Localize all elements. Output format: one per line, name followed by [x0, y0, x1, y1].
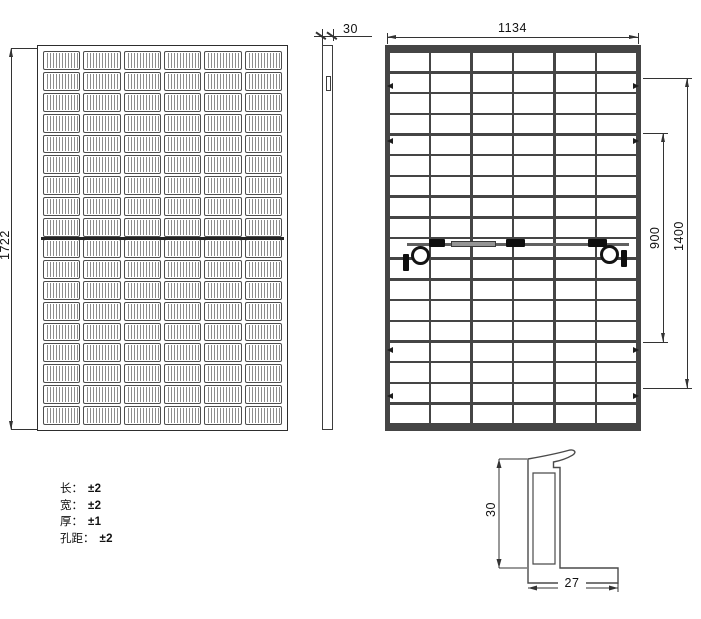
- mount-hole-icon: [633, 83, 639, 89]
- panel-cell: [390, 74, 429, 92]
- front-view-panel: [37, 45, 288, 431]
- mount-hole-icon: [387, 138, 393, 144]
- panel-cell: [431, 322, 470, 340]
- panel-cell: [390, 322, 429, 340]
- arrow-icon: [528, 586, 537, 591]
- panel-cell: [83, 72, 120, 91]
- panel-cell: [164, 51, 201, 70]
- back-view-panel: [385, 45, 641, 431]
- side-view-mount-slot: [326, 76, 331, 91]
- panel-cell: [43, 72, 80, 91]
- dim-ext-1134-right: [638, 33, 639, 44]
- panel-cell: [164, 197, 201, 216]
- panel-cell: [556, 301, 595, 319]
- panel-cell: [43, 155, 80, 174]
- panel-cell: [514, 281, 553, 299]
- panel-cell: [390, 384, 429, 402]
- panel-cell: [473, 115, 512, 133]
- panel-cell: [514, 74, 553, 92]
- panel-cell: [556, 322, 595, 340]
- panel-cell: [514, 301, 553, 319]
- panel-cell: [390, 177, 429, 195]
- tolerance-value: ±1: [88, 516, 101, 528]
- panel-cell: [204, 155, 241, 174]
- panel-cell: [431, 260, 470, 278]
- panel-cell: [245, 385, 282, 404]
- mount-hole-icon: [633, 347, 639, 353]
- arrow-icon: [609, 586, 618, 591]
- dim-label-1722: 1722: [0, 206, 16, 284]
- panel-cell: [245, 302, 282, 321]
- dim-ext-900-bottom: [643, 342, 668, 343]
- panel-cell: [556, 363, 595, 381]
- panel-cell: [556, 94, 595, 112]
- panel-cell: [390, 281, 429, 299]
- tolerance-row: 厚：±1: [60, 514, 113, 531]
- dim-ext-30-right: [333, 29, 334, 41]
- panel-cell: [204, 343, 241, 362]
- panel-cell: [245, 323, 282, 342]
- cable-coil-left: [411, 246, 430, 265]
- panel-cell: [83, 93, 120, 112]
- panel-cell: [431, 136, 470, 154]
- panel-cell: [597, 74, 636, 92]
- arrow-icon: [497, 559, 502, 568]
- tolerance-value: ±2: [100, 533, 113, 545]
- panel-cell: [431, 384, 470, 402]
- panel-cell: [164, 218, 201, 237]
- panel-cell: [43, 239, 80, 258]
- panel-cell: [597, 343, 636, 361]
- panel-cell: [124, 385, 161, 404]
- panel-cell: [43, 260, 80, 279]
- panel-cell: [43, 406, 80, 425]
- panel-cell: [43, 385, 80, 404]
- panel-cell: [43, 302, 80, 321]
- panel-cell: [556, 53, 595, 71]
- panel-cell: [83, 364, 120, 383]
- panel-cell: [43, 281, 80, 300]
- tolerance-label: 厚：: [60, 516, 83, 528]
- mount-hole-icon: [633, 393, 639, 399]
- panel-cell: [597, 301, 636, 319]
- panel-cell: [83, 114, 120, 133]
- panel-cell: [514, 156, 553, 174]
- panel-cell: [431, 53, 470, 71]
- tolerance-label: 孔距：: [60, 533, 95, 545]
- tolerance-label: 长：: [60, 483, 83, 495]
- panel-cell: [473, 384, 512, 402]
- arrow-icon: [661, 333, 665, 342]
- panel-cell: [431, 343, 470, 361]
- panel-cell: [83, 239, 120, 258]
- panel-cell: [83, 281, 120, 300]
- panel-cell: [514, 177, 553, 195]
- cable-connector: [429, 239, 445, 247]
- panel-cell: [245, 155, 282, 174]
- tolerance-label: 宽：: [60, 500, 83, 512]
- panel-cell: [514, 363, 553, 381]
- panel-cell: [164, 343, 201, 362]
- panel-cell: [124, 176, 161, 195]
- panel-cell: [556, 74, 595, 92]
- dim-line-1400: [687, 78, 688, 388]
- dim-label-30-side: 30: [343, 22, 358, 36]
- panel-cell: [556, 156, 595, 174]
- panel-cell: [204, 176, 241, 195]
- profile-cavity: [533, 473, 555, 564]
- panel-cell: [124, 323, 161, 342]
- panel-cell: [514, 115, 553, 133]
- panel-cell: [124, 260, 161, 279]
- panel-cell: [43, 323, 80, 342]
- panel-cell: [597, 384, 636, 402]
- panel-cell: [473, 74, 512, 92]
- panel-cell: [431, 281, 470, 299]
- panel-cell: [164, 72, 201, 91]
- panel-cell: [204, 218, 241, 237]
- panel-cell: [514, 322, 553, 340]
- panel-cell: [204, 281, 241, 300]
- panel-cell: [473, 198, 512, 216]
- panel-cell: [43, 176, 80, 195]
- panel-cell: [164, 155, 201, 174]
- panel-cell: [514, 94, 553, 112]
- panel-cell: [204, 323, 241, 342]
- panel-cell: [245, 93, 282, 112]
- panel-cell: [514, 219, 553, 237]
- panel-cell: [204, 197, 241, 216]
- panel-cell: [83, 197, 120, 216]
- panel-cell: [597, 53, 636, 71]
- panel-cell: [597, 177, 636, 195]
- cable-coil-right: [600, 245, 619, 264]
- panel-cell: [43, 135, 80, 154]
- panel-cell: [390, 219, 429, 237]
- panel-cell: [124, 343, 161, 362]
- panel-cell: [390, 198, 429, 216]
- panel-cell: [204, 364, 241, 383]
- panel-cell: [124, 218, 161, 237]
- panel-cell: [473, 156, 512, 174]
- panel-cell: [204, 385, 241, 404]
- panel-cell: [597, 260, 636, 278]
- solar-panel-technical-drawing: 1722 30 1134: [0, 0, 701, 619]
- panel-cell: [390, 363, 429, 381]
- panel-cell: [124, 239, 161, 258]
- panel-cell: [556, 219, 595, 237]
- panel-cell: [124, 281, 161, 300]
- dim-line-1134: [387, 37, 638, 38]
- panel-cell: [43, 343, 80, 362]
- panel-cell: [83, 218, 120, 237]
- panel-cell: [245, 197, 282, 216]
- dim-label-27: 27: [558, 576, 586, 590]
- panel-cell: [204, 135, 241, 154]
- panel-cell: [473, 136, 512, 154]
- panel-cell: [245, 260, 282, 279]
- panel-cell: [597, 198, 636, 216]
- panel-cell: [473, 260, 512, 278]
- panel-cell: [556, 405, 595, 423]
- panel-cell: [164, 302, 201, 321]
- front-view-middle-divider: [41, 237, 284, 240]
- arrow-icon: [497, 459, 502, 468]
- arrow-icon: [685, 78, 689, 87]
- panel-cell: [473, 53, 512, 71]
- panel-cell: [597, 115, 636, 133]
- panel-cell: [473, 219, 512, 237]
- panel-cell: [164, 93, 201, 112]
- panel-cell: [390, 343, 429, 361]
- cable-connector-plug: [621, 250, 627, 267]
- arrow-icon: [387, 35, 396, 39]
- panel-cell: [390, 301, 429, 319]
- arrow-icon: [661, 133, 665, 142]
- arrow-icon: [685, 379, 689, 388]
- dim-ext-1722-bottom: [11, 429, 37, 430]
- dim-label-1134: 1134: [460, 21, 565, 35]
- arrow-icon: [629, 35, 638, 39]
- panel-cell: [473, 177, 512, 195]
- panel-cell: [124, 93, 161, 112]
- panel-cell: [43, 364, 80, 383]
- panel-cell: [164, 176, 201, 195]
- panel-cell: [597, 405, 636, 423]
- panel-cell: [204, 302, 241, 321]
- junction-box: [451, 241, 496, 247]
- panel-cell: [431, 301, 470, 319]
- panel-cell: [164, 406, 201, 425]
- panel-cell: [204, 239, 241, 258]
- panel-cell: [597, 219, 636, 237]
- cable-connector: [506, 239, 525, 247]
- tolerance-notes: 长：±2 宽：±2 厚：±1 孔距：±2: [60, 481, 113, 547]
- arrow-icon: [9, 421, 13, 430]
- back-view-cell-grid: [390, 53, 636, 423]
- panel-cell: [514, 343, 553, 361]
- panel-cell: [556, 384, 595, 402]
- panel-cell: [43, 114, 80, 133]
- panel-cell: [245, 218, 282, 237]
- panel-cell: [514, 405, 553, 423]
- panel-cell: [245, 343, 282, 362]
- dim-ext-1400-bottom: [643, 388, 692, 389]
- mount-hole-icon: [387, 83, 393, 89]
- panel-cell: [43, 51, 80, 70]
- panel-cell: [473, 343, 512, 361]
- dim-label-30-profile: 30: [484, 490, 499, 530]
- panel-cell: [164, 323, 201, 342]
- panel-cell: [83, 155, 120, 174]
- panel-cell: [514, 260, 553, 278]
- panel-cell: [83, 135, 120, 154]
- panel-cell: [390, 405, 429, 423]
- panel-cell: [124, 155, 161, 174]
- panel-cell: [124, 135, 161, 154]
- arrow-icon: [9, 48, 13, 57]
- panel-cell: [431, 198, 470, 216]
- panel-cell: [204, 51, 241, 70]
- panel-cell: [245, 114, 282, 133]
- panel-cell: [83, 385, 120, 404]
- panel-cell: [597, 281, 636, 299]
- panel-cell: [556, 177, 595, 195]
- panel-cell: [556, 343, 595, 361]
- panel-cell: [597, 136, 636, 154]
- panel-cell: [245, 281, 282, 300]
- mount-hole-icon: [633, 138, 639, 144]
- panel-cell: [514, 136, 553, 154]
- panel-cell: [556, 136, 595, 154]
- panel-cell: [556, 260, 595, 278]
- panel-cell: [245, 135, 282, 154]
- panel-cell: [390, 115, 429, 133]
- panel-cell: [597, 156, 636, 174]
- panel-cell: [43, 197, 80, 216]
- panel-cell: [390, 94, 429, 112]
- panel-cell: [473, 405, 512, 423]
- panel-cell: [431, 219, 470, 237]
- panel-cell: [431, 94, 470, 112]
- dim-line-900: [663, 133, 664, 342]
- panel-cell: [204, 93, 241, 112]
- panel-cell: [514, 384, 553, 402]
- cable-connector-plug: [403, 254, 409, 271]
- dim-label-900: 900: [648, 198, 663, 278]
- dim-label-1400: 1400: [672, 191, 687, 281]
- panel-cell: [204, 114, 241, 133]
- panel-cell: [556, 198, 595, 216]
- panel-cell: [597, 94, 636, 112]
- tolerance-value: ±2: [88, 500, 101, 512]
- panel-cell: [245, 176, 282, 195]
- panel-cell: [473, 301, 512, 319]
- panel-cell: [245, 239, 282, 258]
- panel-cell: [473, 281, 512, 299]
- panel-cell: [473, 94, 512, 112]
- panel-cell: [597, 322, 636, 340]
- tolerance-value: ±2: [88, 483, 101, 495]
- dim-ext-1722-top: [11, 48, 37, 49]
- panel-cell: [473, 322, 512, 340]
- panel-cell: [83, 406, 120, 425]
- panel-cell: [556, 115, 595, 133]
- panel-cell: [83, 51, 120, 70]
- tolerance-row: 长：±2: [60, 481, 113, 498]
- panel-cell: [124, 72, 161, 91]
- panel-cell: [473, 363, 512, 381]
- panel-cell: [124, 364, 161, 383]
- panel-cell: [124, 114, 161, 133]
- panel-cell: [245, 364, 282, 383]
- panel-cell: [164, 260, 201, 279]
- panel-cell: [431, 405, 470, 423]
- panel-cell: [164, 281, 201, 300]
- tolerance-row: 宽：±2: [60, 498, 113, 515]
- panel-cell: [124, 197, 161, 216]
- panel-cell: [204, 72, 241, 91]
- panel-cell: [124, 51, 161, 70]
- panel-cell: [245, 51, 282, 70]
- panel-cell: [390, 53, 429, 71]
- side-view-panel: [322, 45, 333, 430]
- panel-cell: [83, 176, 120, 195]
- panel-cell: [390, 156, 429, 174]
- panel-cell: [204, 260, 241, 279]
- panel-cell: [43, 218, 80, 237]
- panel-cell: [245, 72, 282, 91]
- panel-cell: [83, 323, 120, 342]
- panel-cell: [83, 302, 120, 321]
- panel-cell: [597, 363, 636, 381]
- panel-cell: [556, 281, 595, 299]
- panel-cell: [124, 406, 161, 425]
- tolerance-row: 孔距：±2: [60, 531, 113, 548]
- panel-cell: [245, 406, 282, 425]
- panel-cell: [431, 74, 470, 92]
- panel-cell: [124, 302, 161, 321]
- mount-hole-icon: [387, 347, 393, 353]
- panel-cell: [83, 343, 120, 362]
- panel-cell: [164, 364, 201, 383]
- panel-cell: [164, 135, 201, 154]
- panel-cell: [431, 115, 470, 133]
- panel-cell: [514, 53, 553, 71]
- panel-cell: [431, 177, 470, 195]
- panel-cell: [164, 114, 201, 133]
- panel-cell: [204, 406, 241, 425]
- panel-cell: [164, 239, 201, 258]
- panel-cell: [431, 363, 470, 381]
- panel-cell: [43, 93, 80, 112]
- mount-hole-icon: [387, 393, 393, 399]
- panel-cell: [431, 156, 470, 174]
- panel-cell: [390, 136, 429, 154]
- panel-cell: [83, 260, 120, 279]
- panel-cell: [514, 198, 553, 216]
- panel-cell: [164, 385, 201, 404]
